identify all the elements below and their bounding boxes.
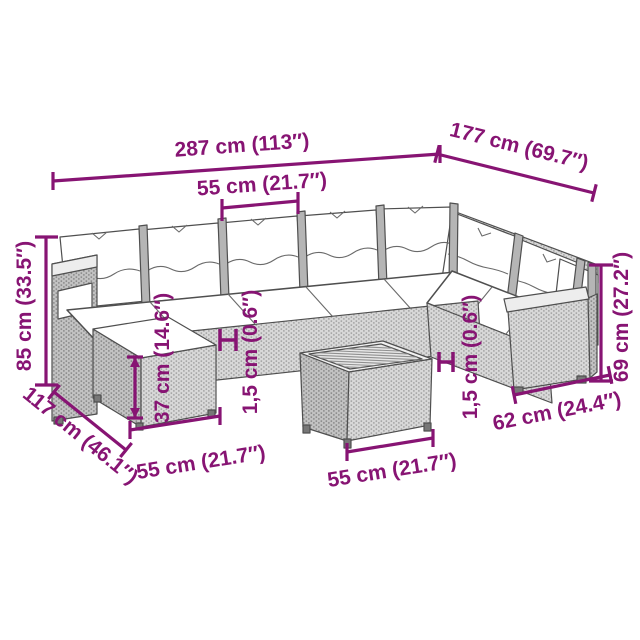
coffee-table bbox=[296, 341, 436, 448]
dim-label-cushion-thickness-right: 1,5 cm (0.6″) bbox=[459, 295, 483, 419]
dim-label-footstool-height: 37 cm (14.6″) bbox=[151, 293, 175, 423]
furniture-illustration bbox=[0, 0, 640, 640]
diagram-canvas: 287 cm (113″) 177 cm (69.7″) 55 cm (21.7… bbox=[0, 0, 640, 640]
right-armrest bbox=[504, 287, 597, 394]
dim-label-overall-height: 85 cm (33.5″) bbox=[13, 241, 37, 371]
left-armrest bbox=[52, 255, 97, 424]
dim-label-cushion-thickness-left: 1,5 cm (0.6″) bbox=[239, 290, 263, 414]
dim-label-armrest-height: 69 cm (27.2″) bbox=[610, 252, 634, 382]
